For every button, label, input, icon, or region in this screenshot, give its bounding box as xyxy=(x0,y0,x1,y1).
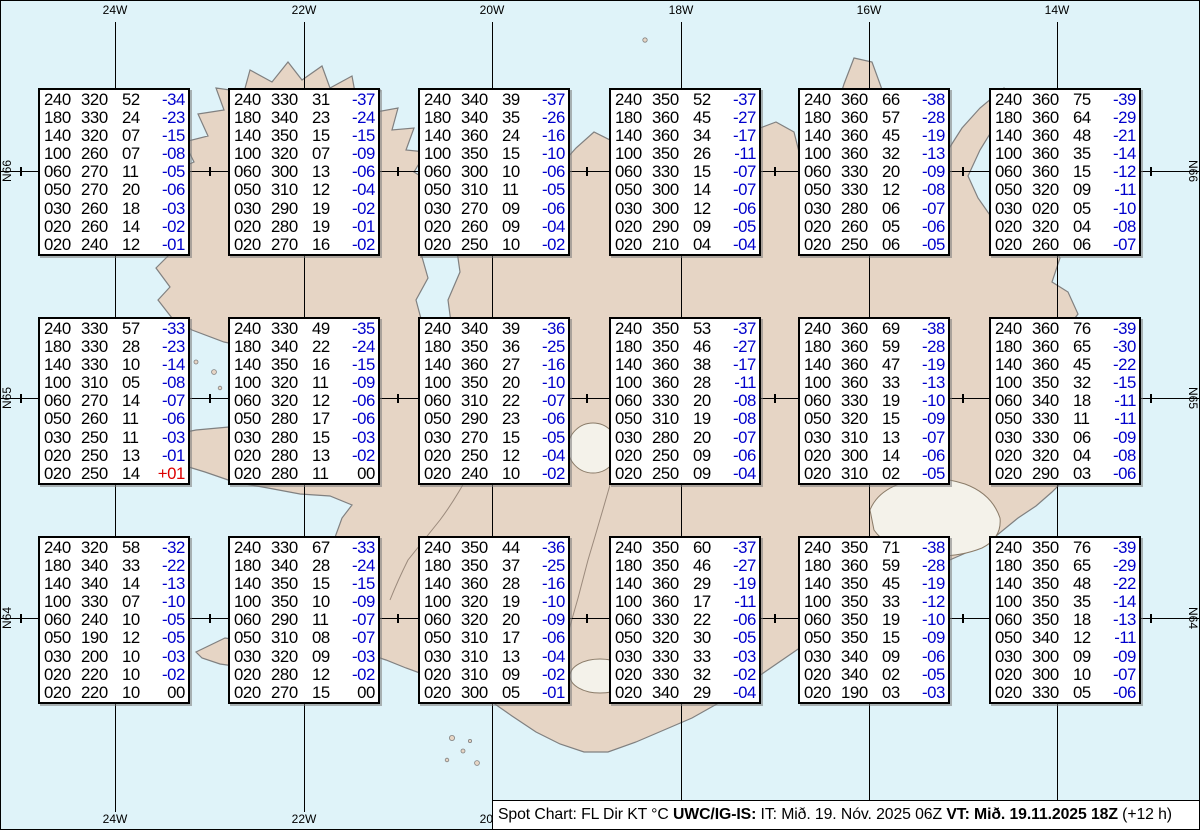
wind-direction-value: 350 xyxy=(461,338,502,356)
wind-speed-value: 66 xyxy=(882,91,913,109)
spot-row: 03033006-09 xyxy=(995,429,1137,447)
wind-speed-value: 23 xyxy=(312,109,343,127)
meridian-label-top-22W: 22W xyxy=(292,3,317,17)
temperature-value: -04 xyxy=(724,465,757,483)
wind-speed-value: 28 xyxy=(312,557,343,575)
wind-speed-value: 18 xyxy=(1073,392,1104,410)
wind-direction-value: 280 xyxy=(271,410,312,428)
wind-speed-value: 39 xyxy=(502,91,533,109)
wind-direction-value: 280 xyxy=(841,200,882,218)
wind-speed-value: 04 xyxy=(1073,218,1104,236)
spot-row: 02022010-02 xyxy=(44,666,186,684)
wind-speed-value: 32 xyxy=(882,145,913,163)
spot-row: 18035037-25 xyxy=(424,557,566,575)
temperature-value: -07 xyxy=(913,429,946,447)
temperature-value: -10 xyxy=(913,392,946,410)
flight-level-value: 180 xyxy=(615,338,652,356)
temperature-value: -13 xyxy=(153,575,186,593)
spot-row: 06024010-05 xyxy=(44,611,186,629)
wind-speed-value: 19 xyxy=(502,593,533,611)
wind-direction-value: 330 xyxy=(652,392,693,410)
spot-row: 03029019-02 xyxy=(234,200,376,218)
wind-speed-value: 19 xyxy=(693,410,724,428)
temperature-value: -06 xyxy=(724,611,757,629)
temperature-value: -28 xyxy=(913,557,946,575)
spot-row: 02032004-08 xyxy=(995,447,1137,465)
wind-direction-value: 360 xyxy=(461,356,502,374)
spot-row: 02030005-01 xyxy=(424,684,566,702)
wind-speed-value: 14 xyxy=(122,218,153,236)
flight-level-value: 030 xyxy=(995,648,1032,666)
graticule-tick xyxy=(397,167,399,176)
spot-row: 24033031-37 xyxy=(234,91,376,109)
wind-speed-value: 27 xyxy=(502,356,533,374)
temperature-value: -08 xyxy=(1104,447,1137,465)
temperature-value: -02 xyxy=(533,236,566,254)
spot-box-r1c4: 24035052-3718036045-2714036034-171003502… xyxy=(609,88,761,256)
spot-row: 18036057-28 xyxy=(804,109,946,127)
temperature-value: -04 xyxy=(724,684,757,702)
temperature-value: -07 xyxy=(913,200,946,218)
flight-level-value: 020 xyxy=(804,684,841,702)
wind-speed-value: 10 xyxy=(312,593,343,611)
wind-speed-value: 34 xyxy=(693,127,724,145)
spot-row: 03028006-07 xyxy=(804,200,946,218)
temperature-value: -22 xyxy=(1104,356,1137,374)
wind-direction-value: 300 xyxy=(461,684,502,702)
spot-row: 24035052-37 xyxy=(615,91,757,109)
flight-level-value: 060 xyxy=(615,163,652,181)
wind-speed-value: 17 xyxy=(693,593,724,611)
spot-row: 14035048-22 xyxy=(995,575,1137,593)
spot-row: 24036075-39 xyxy=(995,91,1137,109)
flight-level-value: 030 xyxy=(995,200,1032,218)
temperature-value: -36 xyxy=(533,539,566,557)
wind-speed-value: 15 xyxy=(312,127,343,145)
temperature-value: -13 xyxy=(1104,611,1137,629)
temperature-value: -11 xyxy=(1104,181,1137,199)
temperature-value: -06 xyxy=(913,447,946,465)
temperature-value: -04 xyxy=(343,181,376,199)
flight-level-value: 060 xyxy=(44,392,81,410)
spot-row: 02032004-08 xyxy=(995,218,1137,236)
flight-level-value: 020 xyxy=(424,666,461,684)
wind-direction-value: 340 xyxy=(461,320,502,338)
wind-speed-value: 04 xyxy=(693,236,724,254)
wind-speed-value: 45 xyxy=(693,109,724,127)
temperature-value: -37 xyxy=(343,91,376,109)
spot-row: 10032019-10 xyxy=(424,593,566,611)
flight-level-value: 050 xyxy=(44,629,81,647)
wind-speed-value: 09 xyxy=(312,648,343,666)
wind-speed-value: 45 xyxy=(882,127,913,145)
wind-speed-value: 58 xyxy=(122,539,153,557)
wind-direction-value: 280 xyxy=(271,218,312,236)
wind-speed-value: 15 xyxy=(502,145,533,163)
flight-level-value: 180 xyxy=(615,557,652,575)
flight-level-value: 020 xyxy=(615,236,652,254)
parallel-label-left-N64: N64 xyxy=(0,603,14,633)
temperature-value: -08 xyxy=(913,181,946,199)
temperature-value: -38 xyxy=(913,320,946,338)
wind-direction-value: 330 xyxy=(652,648,693,666)
wind-direction-value: 350 xyxy=(841,629,882,647)
flight-level-value: 140 xyxy=(804,127,841,145)
temperature-value: -34 xyxy=(153,91,186,109)
temperature-value: -03 xyxy=(343,648,376,666)
spot-row: 18036059-28 xyxy=(804,338,946,356)
spot-row: 02026014-02 xyxy=(44,218,186,236)
temperature-value: -09 xyxy=(343,374,376,392)
flight-level-value: 100 xyxy=(44,145,81,163)
temperature-value: -19 xyxy=(913,127,946,145)
flight-level-value: 020 xyxy=(804,218,841,236)
wind-speed-value: 12 xyxy=(882,181,913,199)
wind-direction-value: 260 xyxy=(1032,236,1073,254)
temperature-value: -36 xyxy=(533,320,566,338)
wind-speed-value: 11 xyxy=(122,429,153,447)
temperature-value: -07 xyxy=(533,392,566,410)
wind-direction-value: 310 xyxy=(841,429,882,447)
spot-row: 02030010-07 xyxy=(995,666,1137,684)
flight-level-value: 140 xyxy=(424,356,461,374)
flight-level-value: 060 xyxy=(234,163,271,181)
spot-row: 06034018-11 xyxy=(995,392,1137,410)
wind-speed-value: 07 xyxy=(312,145,343,163)
wind-direction-value: 260 xyxy=(81,145,122,163)
spot-row: 06033022-06 xyxy=(615,611,757,629)
wind-direction-value: 350 xyxy=(841,611,882,629)
temperature-value: -09 xyxy=(913,163,946,181)
spot-row: 24036066-38 xyxy=(804,91,946,109)
temperature-value: -07 xyxy=(724,181,757,199)
flight-level-value: 240 xyxy=(804,320,841,338)
spot-row: 03002005-10 xyxy=(995,200,1137,218)
flight-level-value: 050 xyxy=(424,181,461,199)
spot-row: 02034002-05 xyxy=(804,666,946,684)
wind-direction-value: 270 xyxy=(271,236,312,254)
temperature-value: -09 xyxy=(913,629,946,647)
wind-direction-value: 290 xyxy=(1032,465,1073,483)
flight-level-value: 100 xyxy=(234,374,271,392)
flight-level-value: 100 xyxy=(995,145,1032,163)
flight-level-value: 020 xyxy=(424,465,461,483)
spot-row: 18034023-24 xyxy=(234,109,376,127)
temperature-value: -10 xyxy=(153,593,186,611)
wind-direction-value: 350 xyxy=(841,539,882,557)
wind-speed-value: 06 xyxy=(882,200,913,218)
wind-speed-value: 52 xyxy=(122,91,153,109)
temperature-value: -05 xyxy=(153,163,186,181)
wind-direction-value: 310 xyxy=(652,410,693,428)
flight-level-value: 050 xyxy=(234,410,271,428)
temperature-value: -09 xyxy=(343,593,376,611)
wind-speed-value: 06 xyxy=(1073,236,1104,254)
wind-direction-value: 340 xyxy=(81,557,122,575)
wind-direction-value: 340 xyxy=(271,557,312,575)
spot-row: 03031013-04 xyxy=(424,648,566,666)
flight-level-value: 060 xyxy=(804,163,841,181)
wind-direction-value: 270 xyxy=(81,181,122,199)
flight-level-value: 030 xyxy=(804,648,841,666)
temperature-value: -39 xyxy=(1104,539,1137,557)
temperature-value: -11 xyxy=(724,593,757,611)
wind-direction-value: 350 xyxy=(461,374,502,392)
wind-speed-value: 12 xyxy=(693,200,724,218)
temperature-value: -03 xyxy=(724,648,757,666)
parallel-label-right-N64: N64 xyxy=(1186,603,1200,633)
spot-row: 10033007-10 xyxy=(44,593,186,611)
spot-box-r1c5: 24036066-3818036057-2814036045-191003603… xyxy=(798,88,950,256)
temperature-value: -04 xyxy=(533,648,566,666)
temperature-value: -06 xyxy=(724,447,757,465)
spot-row: 24034039-37 xyxy=(424,91,566,109)
wind-speed-value: 13 xyxy=(312,447,343,465)
wind-direction-value: 340 xyxy=(841,666,882,684)
wind-speed-value: 33 xyxy=(882,374,913,392)
temperature-value: -06 xyxy=(724,200,757,218)
wind-speed-value: 10 xyxy=(122,611,153,629)
wind-speed-value: 14 xyxy=(882,447,913,465)
temperature-value: -09 xyxy=(1104,648,1137,666)
spot-row: 10026007-08 xyxy=(44,145,186,163)
wind-speed-value: 15 xyxy=(312,429,343,447)
flight-level-value: 100 xyxy=(424,145,461,163)
wind-direction-value: 360 xyxy=(1032,91,1073,109)
flight-level-value: 030 xyxy=(615,429,652,447)
spot-row: 06035018-13 xyxy=(995,611,1137,629)
spot-row: 05031011-05 xyxy=(424,181,566,199)
wind-speed-value: 12 xyxy=(122,629,153,647)
wind-direction-value: 250 xyxy=(81,447,122,465)
spot-row: 10031005-08 xyxy=(44,374,186,392)
wind-direction-value: 360 xyxy=(841,320,882,338)
spot-row: 03034009-06 xyxy=(804,648,946,666)
meridian-label-top-24W: 24W xyxy=(103,3,128,17)
spot-row: 10035020-10 xyxy=(424,374,566,392)
wind-direction-value: 310 xyxy=(81,374,122,392)
wind-direction-value: 350 xyxy=(1032,575,1073,593)
flight-level-value: 050 xyxy=(804,629,841,647)
flight-level-value: 100 xyxy=(804,145,841,163)
temperature-value: -06 xyxy=(533,163,566,181)
wind-direction-value: 320 xyxy=(81,539,122,557)
wind-direction-value: 280 xyxy=(271,666,312,684)
wind-speed-value: 02 xyxy=(882,666,913,684)
temperature-value: -05 xyxy=(913,465,946,483)
graticule-tick xyxy=(20,167,22,176)
spot-row: 06033020-08 xyxy=(615,392,757,410)
wind-speed-value: 26 xyxy=(693,145,724,163)
wind-direction-value: 350 xyxy=(271,575,312,593)
spot-row: 03030012-06 xyxy=(615,200,757,218)
flight-level-value: 240 xyxy=(615,539,652,557)
wind-direction-value: 250 xyxy=(841,236,882,254)
spot-row: 06035019-10 xyxy=(804,611,946,629)
wind-speed-value: 22 xyxy=(502,392,533,410)
spot-row: 02029009-05 xyxy=(615,218,757,236)
spot-row: 02033032-02 xyxy=(615,666,757,684)
wind-speed-value: 13 xyxy=(312,163,343,181)
flight-level-value: 140 xyxy=(804,356,841,374)
flight-level-value: 020 xyxy=(995,684,1032,702)
flight-level-value: 020 xyxy=(44,447,81,465)
flight-level-value: 060 xyxy=(804,611,841,629)
wind-speed-value: 48 xyxy=(1073,575,1104,593)
wind-speed-value: 20 xyxy=(693,392,724,410)
wind-direction-value: 210 xyxy=(652,236,693,254)
spot-row: 18034033-22 xyxy=(44,557,186,575)
wind-direction-value: 300 xyxy=(1032,648,1073,666)
wind-direction-value: 280 xyxy=(271,447,312,465)
spot-row: 10036033-13 xyxy=(804,374,946,392)
temperature-value: -15 xyxy=(153,127,186,145)
wind-direction-value: 340 xyxy=(652,684,693,702)
wind-speed-value: 46 xyxy=(693,557,724,575)
flight-level-value: 020 xyxy=(804,465,841,483)
spot-row: 03028020-07 xyxy=(615,429,757,447)
flight-level-value: 140 xyxy=(234,127,271,145)
wind-direction-value: 330 xyxy=(1032,684,1073,702)
graticule-tick xyxy=(1150,614,1152,623)
spot-row: 06030013-06 xyxy=(234,163,376,181)
wind-direction-value: 360 xyxy=(652,109,693,127)
spot-row: 10035015-10 xyxy=(424,145,566,163)
spot-row: 02021004-04 xyxy=(615,236,757,254)
wind-speed-value: 39 xyxy=(502,320,533,338)
wind-direction-value: 330 xyxy=(841,163,882,181)
meridian-label-top-14W: 14W xyxy=(1045,3,1070,17)
wind-direction-value: 320 xyxy=(81,91,122,109)
wind-direction-value: 260 xyxy=(841,218,882,236)
wind-direction-value: 360 xyxy=(1032,320,1073,338)
wind-direction-value: 330 xyxy=(1032,410,1073,428)
flight-level-value: 240 xyxy=(424,539,461,557)
wind-speed-value: 16 xyxy=(312,236,343,254)
wind-direction-value: 360 xyxy=(1032,338,1073,356)
spot-row: 02026005-06 xyxy=(804,218,946,236)
wind-direction-value: 280 xyxy=(271,465,312,483)
flight-level-value: 060 xyxy=(995,611,1032,629)
temperature-value: -02 xyxy=(343,666,376,684)
spot-row: 10035033-12 xyxy=(804,593,946,611)
wind-speed-value: 12 xyxy=(122,236,153,254)
flight-level-value: 020 xyxy=(995,218,1032,236)
temperature-value: -02 xyxy=(153,666,186,684)
wind-speed-value: 44 xyxy=(502,539,533,557)
spot-row: 24035053-37 xyxy=(615,320,757,338)
wind-direction-value: 270 xyxy=(81,392,122,410)
spot-row: 14036045-19 xyxy=(804,127,946,145)
wind-direction-value: 350 xyxy=(652,91,693,109)
temperature-value: -29 xyxy=(1104,557,1137,575)
temperature-value: -39 xyxy=(1104,91,1137,109)
temperature-value: -11 xyxy=(724,374,757,392)
flight-level-value: 100 xyxy=(615,145,652,163)
temperature-value: -11 xyxy=(1104,629,1137,647)
temperature-value: -02 xyxy=(343,236,376,254)
wind-speed-value: 17 xyxy=(502,629,533,647)
flight-level-value: 050 xyxy=(615,629,652,647)
spot-row: 14035015-15 xyxy=(234,575,376,593)
wind-direction-value: 330 xyxy=(81,593,122,611)
flight-level-value: 030 xyxy=(234,648,271,666)
spot-row: 06030010-06 xyxy=(424,163,566,181)
spot-row: 14035016-15 xyxy=(234,356,376,374)
flight-level-value: 030 xyxy=(615,648,652,666)
wind-speed-value: 17 xyxy=(312,410,343,428)
temperature-value: 00 xyxy=(343,465,376,483)
graticule-tick xyxy=(586,394,588,403)
spot-row: 03032009-03 xyxy=(234,648,376,666)
wind-direction-value: 300 xyxy=(652,200,693,218)
wind-direction-value: 320 xyxy=(271,648,312,666)
wind-speed-value: 09 xyxy=(502,218,533,236)
wind-speed-value: 22 xyxy=(312,338,343,356)
temperature-value: -13 xyxy=(913,145,946,163)
wind-direction-value: 360 xyxy=(841,127,882,145)
spot-row: 06032012-06 xyxy=(234,392,376,410)
flight-level-value: 050 xyxy=(995,629,1032,647)
temperature-value: -06 xyxy=(343,392,376,410)
parallel-label-right-N66: N66 xyxy=(1186,156,1200,186)
flight-level-value: 020 xyxy=(44,684,81,702)
temperature-value: -03 xyxy=(343,429,376,447)
wind-speed-value: 02 xyxy=(882,465,913,483)
flight-level-value: 020 xyxy=(424,684,461,702)
flight-level-value: 020 xyxy=(424,218,461,236)
wind-speed-value: 45 xyxy=(882,575,913,593)
wind-speed-value: 35 xyxy=(1073,593,1104,611)
wind-direction-value: 360 xyxy=(1032,163,1073,181)
meridian-label-top-20W: 20W xyxy=(480,3,505,17)
temperature-value: -07 xyxy=(153,392,186,410)
wind-speed-value: 76 xyxy=(1073,320,1104,338)
spot-box-r3c4: 24035060-3718035046-2714036029-191003601… xyxy=(609,536,761,704)
spot-row: 24036069-38 xyxy=(804,320,946,338)
spot-row: 18034028-24 xyxy=(234,557,376,575)
spot-row: 10035032-15 xyxy=(995,374,1137,392)
flight-level-value: 020 xyxy=(615,447,652,465)
meridian-label-top-18W: 18W xyxy=(669,3,694,17)
wind-speed-value: 33 xyxy=(122,557,153,575)
wind-direction-value: 240 xyxy=(81,236,122,254)
wind-direction-value: 340 xyxy=(271,109,312,127)
spot-row: 14036045-22 xyxy=(995,356,1137,374)
parallel-label-left-N65: N65 xyxy=(0,383,14,413)
temperature-value: -01 xyxy=(153,447,186,465)
flight-level-value: 020 xyxy=(615,684,652,702)
wind-direction-value: 360 xyxy=(841,374,882,392)
wind-speed-value: 09 xyxy=(502,200,533,218)
wind-speed-value: 05 xyxy=(882,218,913,236)
wind-direction-value: 330 xyxy=(271,91,312,109)
temperature-value: +01 xyxy=(153,465,186,483)
spot-row: 05033012-08 xyxy=(804,181,946,199)
temperature-value: -14 xyxy=(1104,145,1137,163)
wind-speed-value: 13 xyxy=(122,447,153,465)
spot-row: 05035015-09 xyxy=(804,629,946,647)
temperature-value: 00 xyxy=(343,684,376,702)
spot-row: 14036029-19 xyxy=(615,575,757,593)
flight-level-value: 020 xyxy=(615,218,652,236)
flight-level-value: 100 xyxy=(995,374,1032,392)
flight-level-value: 060 xyxy=(615,611,652,629)
spot-row: 06029011-07 xyxy=(234,611,376,629)
spot-box-r3c5: 24035071-3818036059-2814035045-191003503… xyxy=(798,536,950,704)
flight-level-value: 140 xyxy=(995,575,1032,593)
flight-level-value: 240 xyxy=(995,539,1032,557)
